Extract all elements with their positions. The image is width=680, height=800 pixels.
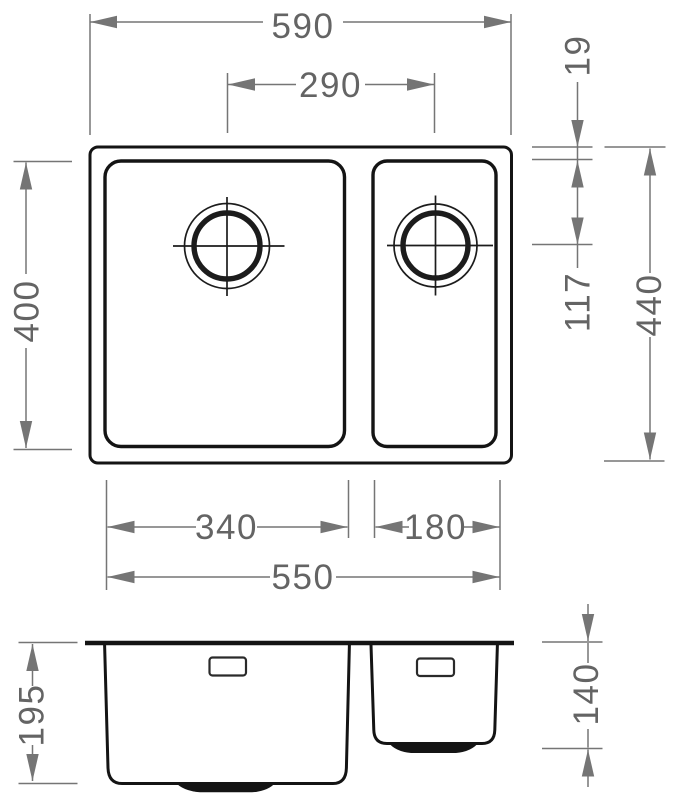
svg-text:117: 117 (559, 272, 598, 332)
svg-text:180: 180 (404, 508, 467, 547)
svg-text:550: 550 (272, 558, 335, 597)
svg-text:340: 340 (195, 508, 258, 547)
svg-text:140: 140 (567, 663, 606, 726)
svg-text:590: 590 (272, 7, 335, 46)
svg-text:195: 195 (13, 684, 52, 747)
svg-text:440: 440 (630, 274, 669, 337)
svg-text:400: 400 (8, 280, 47, 343)
svg-text:19: 19 (559, 35, 598, 77)
svg-text:290: 290 (299, 66, 362, 105)
